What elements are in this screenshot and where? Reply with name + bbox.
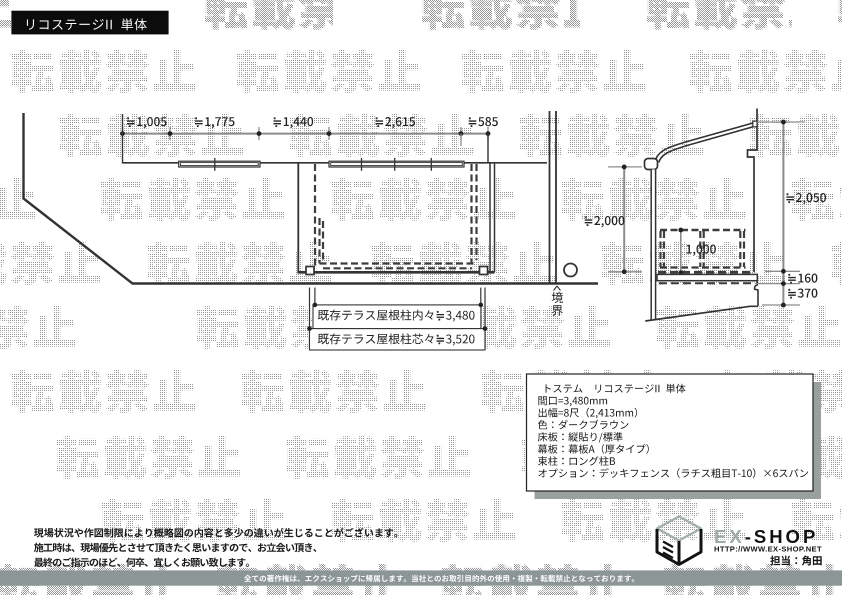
svg-text:HTTP://WWW.EX-SHOP.NET: HTTP://WWW.EX-SHOP.NET — [714, 545, 822, 554]
